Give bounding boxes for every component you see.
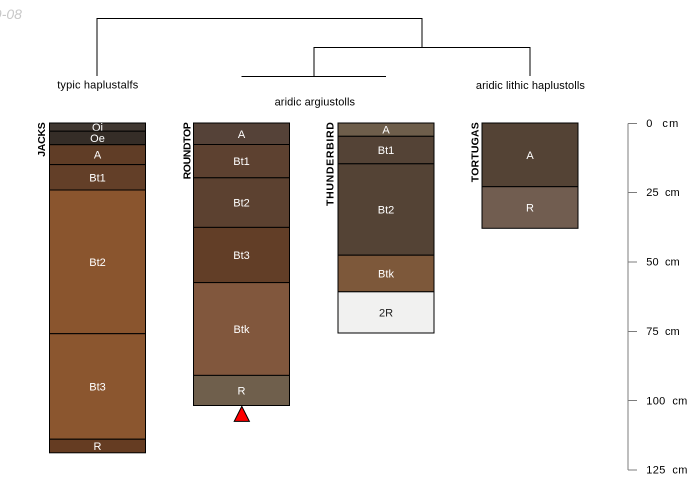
svg-text:50 cm: 50 cm	[646, 257, 679, 269]
svg-text:Bt2: Bt2	[233, 198, 250, 210]
svg-text:TORTUGAS: TORTUGAS	[469, 122, 481, 182]
svg-text:75 cm: 75 cm	[646, 326, 679, 338]
svg-text:Bt1: Bt1	[233, 156, 250, 168]
svg-text:R: R	[94, 441, 102, 453]
svg-text:Bt3: Bt3	[89, 381, 106, 393]
svg-text:Bt2: Bt2	[89, 257, 106, 269]
svg-text:aridic lithic haplustolls: aridic lithic haplustolls	[476, 80, 586, 92]
svg-text:Btk: Btk	[378, 269, 394, 281]
svg-text:Bt3: Bt3	[233, 250, 250, 262]
svg-text:2R: 2R	[379, 307, 393, 319]
svg-text:A: A	[94, 150, 102, 162]
svg-text:Oe: Oe	[90, 133, 105, 145]
svg-text:Btk: Btk	[234, 324, 250, 336]
svg-text:ROUNDTOP: ROUNDTOP	[181, 122, 193, 179]
svg-text:9-08: 9-08	[0, 6, 22, 22]
svg-text:Bt2: Bt2	[378, 205, 395, 217]
svg-text:100 cm: 100 cm	[646, 395, 687, 407]
svg-text:A: A	[238, 129, 246, 141]
svg-text:typic haplustalfs: typic haplustalfs	[57, 80, 139, 92]
svg-text:A: A	[382, 125, 390, 137]
svg-text:Bt1: Bt1	[89, 172, 106, 184]
svg-text:25 cm: 25 cm	[646, 187, 679, 199]
svg-text:Bt1: Bt1	[378, 145, 395, 157]
svg-text:A: A	[526, 150, 534, 162]
svg-text:0 cm: 0 cm	[646, 118, 678, 130]
svg-text:THUNDERBIRD: THUNDERBIRD	[324, 122, 336, 206]
svg-text:R: R	[238, 386, 246, 398]
svg-text:aridic argiustolls: aridic argiustolls	[275, 96, 356, 108]
svg-text:125 cm: 125 cm	[646, 465, 687, 477]
svg-text:JACKS: JACKS	[36, 122, 48, 157]
svg-text:R: R	[526, 203, 534, 215]
